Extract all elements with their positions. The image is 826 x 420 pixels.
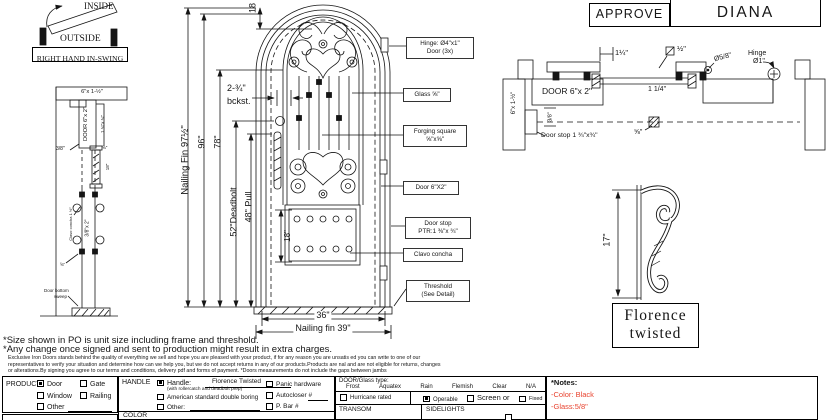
jamb-sweep-label-2: sweep	[54, 295, 67, 300]
product-railing-checkbox[interactable]	[80, 392, 87, 399]
callout-clavo-line1: Clavo concha	[406, 251, 460, 260]
screen-checkbox[interactable]	[467, 395, 474, 402]
product-gate-checkbox[interactable]	[80, 380, 87, 387]
callout-clavo: Clavo concha	[403, 248, 463, 262]
operable-label: Operable	[433, 397, 458, 403]
callout-threshold-line2: (See Detail)	[409, 291, 467, 300]
handle-boring-label: American standard double boring	[167, 395, 258, 401]
callout-glass-line1: Glass ⅝"	[406, 91, 448, 100]
footer-fine-1: Exclusive Iron Doors stands behind the q…	[8, 356, 420, 361]
handle-boring-checkbox[interactable]	[157, 394, 164, 401]
dim-pull: 48" Pull	[245, 192, 254, 223]
handle-pbar-checkbox[interactable]	[266, 403, 273, 410]
dim-96: 96"	[198, 135, 207, 148]
jamb-glass-label: ⅝"	[102, 146, 107, 151]
handle-handle-label: Handle:	[167, 380, 191, 387]
dim-36: 36"	[314, 311, 331, 320]
scroll-name-line1: Florence	[613, 307, 698, 325]
callout-hinge-line2: Door (3x)	[409, 48, 471, 57]
callout-hinge-line1: Hinge: Ø4"x1"	[409, 40, 471, 49]
product-window-label: Window	[47, 393, 72, 400]
head-door-label: DOOR 6"x 2"	[542, 87, 592, 96]
handle-pbar-field[interactable]	[302, 411, 320, 412]
product-door-checkbox[interactable]	[37, 380, 44, 387]
hurricane-label: Hurricane rated	[350, 395, 391, 401]
glass-type-aquatex[interactable]: Aquatex	[379, 384, 401, 390]
sidelights-label: SIDELIGHTS	[426, 407, 465, 414]
notes-glass: -Glass:5/8"	[551, 403, 588, 411]
glass-types-row: Frost Aquatex Rain Flemish Clear N/A	[346, 384, 536, 390]
scroll-name-box: Florence twisted	[612, 303, 699, 348]
spec-sheet: INSIDE OUTSIDE RIGHT HAND IN-SWING APPRO…	[0, 0, 826, 420]
glass-col-divider-2	[421, 404, 422, 420]
color-section-label: COLOR	[123, 413, 147, 420]
product-other-checkbox[interactable]	[37, 403, 44, 410]
dim-deadbolt: 52"Deadbolt	[230, 187, 239, 236]
sidelights-checkbox[interactable]	[505, 414, 512, 420]
footer-note-2: *Any change once signed and sent to prod…	[3, 345, 332, 355]
operable-checkbox[interactable]	[423, 396, 430, 403]
callout-door: Door 6"X2"	[403, 181, 459, 195]
approve-label: APPROVE	[596, 7, 663, 21]
approve-cell: APPROVE	[589, 3, 670, 27]
head-hinge-label-1: Hinge	[748, 50, 766, 57]
jamb-door-label: DOOR 6"x 2"	[84, 107, 90, 141]
notes-title: *Notes:	[551, 379, 577, 387]
glass-type-flemish[interactable]: Flemish	[452, 384, 473, 390]
jamb-gap-label: 3/8"	[56, 147, 65, 152]
glass-type-rain[interactable]: Rain	[420, 384, 432, 390]
head-dim-38: 3/8"	[548, 112, 554, 122]
callout-door-line1: Door 6"X2"	[406, 184, 456, 193]
hurricane-checkbox[interactable]	[340, 394, 347, 401]
product-gate-label: Gate	[90, 381, 105, 388]
handle-other-field[interactable]	[190, 410, 260, 411]
handle-pbar-label: P. Bar #	[276, 404, 299, 411]
handle-autocloser-field[interactable]	[308, 400, 328, 401]
fixed-label: Fixed	[529, 397, 542, 403]
callout-doorstop: Door stop PTR:1 ⅜"x ¾"	[405, 217, 471, 239]
callout-forging-line1: Forging square	[406, 128, 464, 137]
dim-top18: 18	[249, 3, 258, 13]
handle-checkbox[interactable]	[157, 380, 164, 387]
screen-label: Screen or	[477, 394, 510, 402]
handle-sub-label: (with rollercatch and deadbolt prep)	[167, 388, 242, 393]
callout-threshold-line1: Threshold	[409, 283, 467, 292]
callout-hinge: Hinge: Ø4"x1" Door (3x)	[406, 37, 474, 59]
handle-autocloser-label: Autocloser #	[276, 393, 312, 400]
dim-backset-1: 2-¾"	[227, 84, 246, 93]
product-railing-label: Railing	[90, 393, 111, 400]
product-other-field[interactable]	[68, 411, 112, 412]
transom-label: TRANSOM	[339, 407, 372, 414]
product-door-label: Door	[47, 381, 62, 388]
head-dim-114: 1¼"	[615, 49, 628, 57]
customer-name: DIANA	[717, 4, 774, 21]
jamb-18-label: 18"	[106, 164, 111, 171]
dim-nailing-fin-width: Nailing fin 39"	[293, 324, 352, 333]
handle-panic-label: Panic hardware	[276, 382, 321, 389]
dim-backset-2: bckst.	[227, 97, 251, 106]
swing-caption: RIGHT HAND IN-SWING	[37, 54, 123, 63]
glass-row-divider-1	[335, 391, 546, 392]
callout-forging: Forging square ⅝"x⅝"	[403, 125, 467, 147]
scroll-detail-shapes	[612, 185, 678, 300]
handle-autocloser-checkbox[interactable]	[266, 392, 273, 399]
callout-doorstop-line1: Door stop	[408, 220, 468, 229]
handle-label: HANDLE	[122, 379, 150, 386]
glass-row-divider-2	[335, 404, 546, 405]
door-elevation-shapes	[184, 5, 406, 339]
jamb-sweep-label-1: Door bottom	[44, 289, 69, 294]
scroll-dim-17: 17"	[603, 233, 612, 246]
product-other-label: Other	[47, 404, 65, 411]
glass-type-frost[interactable]: Frost	[346, 384, 360, 390]
head-dim-half: ½"	[677, 45, 686, 53]
jamb-header-label: 6"x 1-½"	[81, 90, 103, 96]
glass-type-clear[interactable]: Clear	[492, 384, 506, 390]
customer-name-cell: DIANA	[670, 0, 821, 27]
jamb-stop-label: 1 ¾"x ¾"	[101, 115, 106, 133]
jamb-58-label: ⅝"	[60, 263, 65, 267]
dim-panel18: 18"	[284, 230, 292, 242]
swing-outside-label: OUTSIDE	[60, 35, 101, 45]
callout-glass: Glass ⅝"	[403, 88, 451, 102]
footer-fine-2: representatives to verify your situation…	[8, 363, 441, 368]
notes-color: -Color: Black	[551, 391, 594, 399]
head-dim-114b: 1 1/4"	[648, 86, 666, 93]
handle-value: Florence Twisted	[212, 379, 261, 386]
swing-caption-box: RIGHT HAND IN-SWING	[32, 47, 128, 62]
product-box-2	[2, 414, 118, 420]
handle-panic-checkbox[interactable]	[266, 381, 273, 388]
head-jamb-label: 6"x 1-½"	[511, 92, 517, 115]
handle-other-checkbox[interactable]	[157, 404, 164, 411]
jamb-leaf-label: 3/8"x 2"	[86, 219, 91, 236]
dim-nailing-fin-height: Nailing Fin 97½"	[180, 125, 190, 194]
dim-78: 78"	[214, 135, 223, 148]
scroll-name-line2: twisted	[613, 325, 698, 343]
head-hinge-label-2: Ø1"	[753, 58, 765, 65]
product-window-checkbox[interactable]	[37, 392, 44, 399]
callout-forging-line2: ⅝"x⅝"	[406, 136, 464, 145]
swing-inside-label: INSIDE	[84, 2, 114, 11]
handle-other-label: Other:	[167, 405, 185, 412]
fixed-checkbox[interactable]	[519, 396, 526, 403]
jamb-clavo-label: Clavo concha 1 ½"	[69, 207, 73, 240]
callout-threshold: Threshold (See Detail)	[406, 280, 470, 302]
head-doorstop-label: Door stop 1 ¾"x¾"	[541, 133, 598, 140]
callout-doorstop-line2: PTR:1 ⅜"x ¾"	[408, 228, 468, 237]
glass-col-divider-1	[410, 391, 411, 405]
head-frac-58: ⅝"	[634, 129, 642, 136]
footer-fine-3: or alterations.By signing you agree to o…	[8, 369, 387, 374]
glass-type-na[interactable]: N/A	[526, 384, 536, 390]
